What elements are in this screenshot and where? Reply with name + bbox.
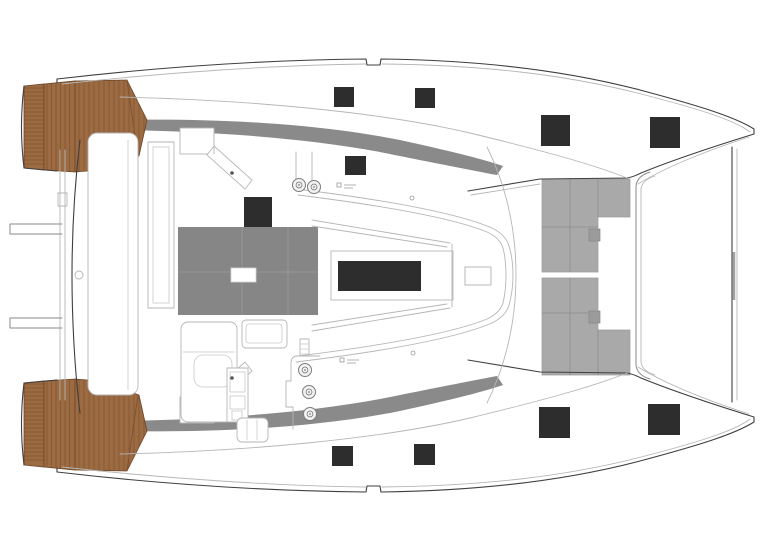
hatch-stbd-bow-1 [539,407,570,438]
trampoline-panel [542,278,630,375]
deck-link-line [471,184,540,195]
beam-roller [75,271,83,279]
cockpit-bench [148,142,174,308]
aft-crossbeam-curve [72,140,80,413]
cockpit-bench-inner [153,147,169,303]
padeye-starboard [411,351,415,355]
mast-step [465,267,491,285]
mast-posts [296,152,312,182]
hatch-stbd-aft-2 [414,444,435,465]
trampoline-step [589,311,600,323]
deck-plan-viewer: Catamaran deck plan, top view, bow to th… [0,0,770,550]
hatch-port-bow-1 [541,115,570,146]
davit-arm-upper [10,224,62,234]
saloon-skylight [338,261,421,291]
label-mark-starboard [340,358,344,362]
trampoline-panel [542,179,630,272]
beam-fitting [58,193,67,206]
hatch-port-aft-2 [415,88,435,108]
hatch-stbd-bow-2 [648,404,680,435]
deck-plan-canvas: Catamaran deck plan, top view, bow to th… [0,0,770,550]
clutch-bank-lines [300,344,309,354]
clutch-bank [300,339,309,356]
transom-step-module [237,418,268,442]
hatch-coachroof-small [345,156,366,175]
label-lines-starboard [347,360,359,363]
hatch-port-bow-2 [650,117,680,148]
trampoline-frame [636,172,650,379]
trampoline-frame-inner [641,176,655,375]
teak-panel [24,381,44,467]
hatch-port-aft-1 [334,87,354,107]
teak-panel [44,81,75,172]
padeye-port [410,196,414,200]
aft-beam-lines [60,150,65,400]
step-box-port [180,128,214,154]
label-mark-port [337,183,341,187]
skylight-layer [338,261,491,291]
trampoline-layer [542,179,630,375]
trampoline-step [589,229,600,241]
bimini-white-hatch [231,268,256,282]
cockpit-lounge [88,133,138,395]
cleat-dot-starboard [230,376,234,380]
teak-panel [44,379,75,470]
label-lines-port [344,185,356,188]
bimini-layer [178,227,318,315]
teak-panel [24,84,44,170]
davit-arm-lower [10,318,62,328]
hatch-stbd-aft-1 [332,446,353,466]
hatch-cockpit-roof [244,197,272,227]
cleat-dot-port [230,171,234,175]
